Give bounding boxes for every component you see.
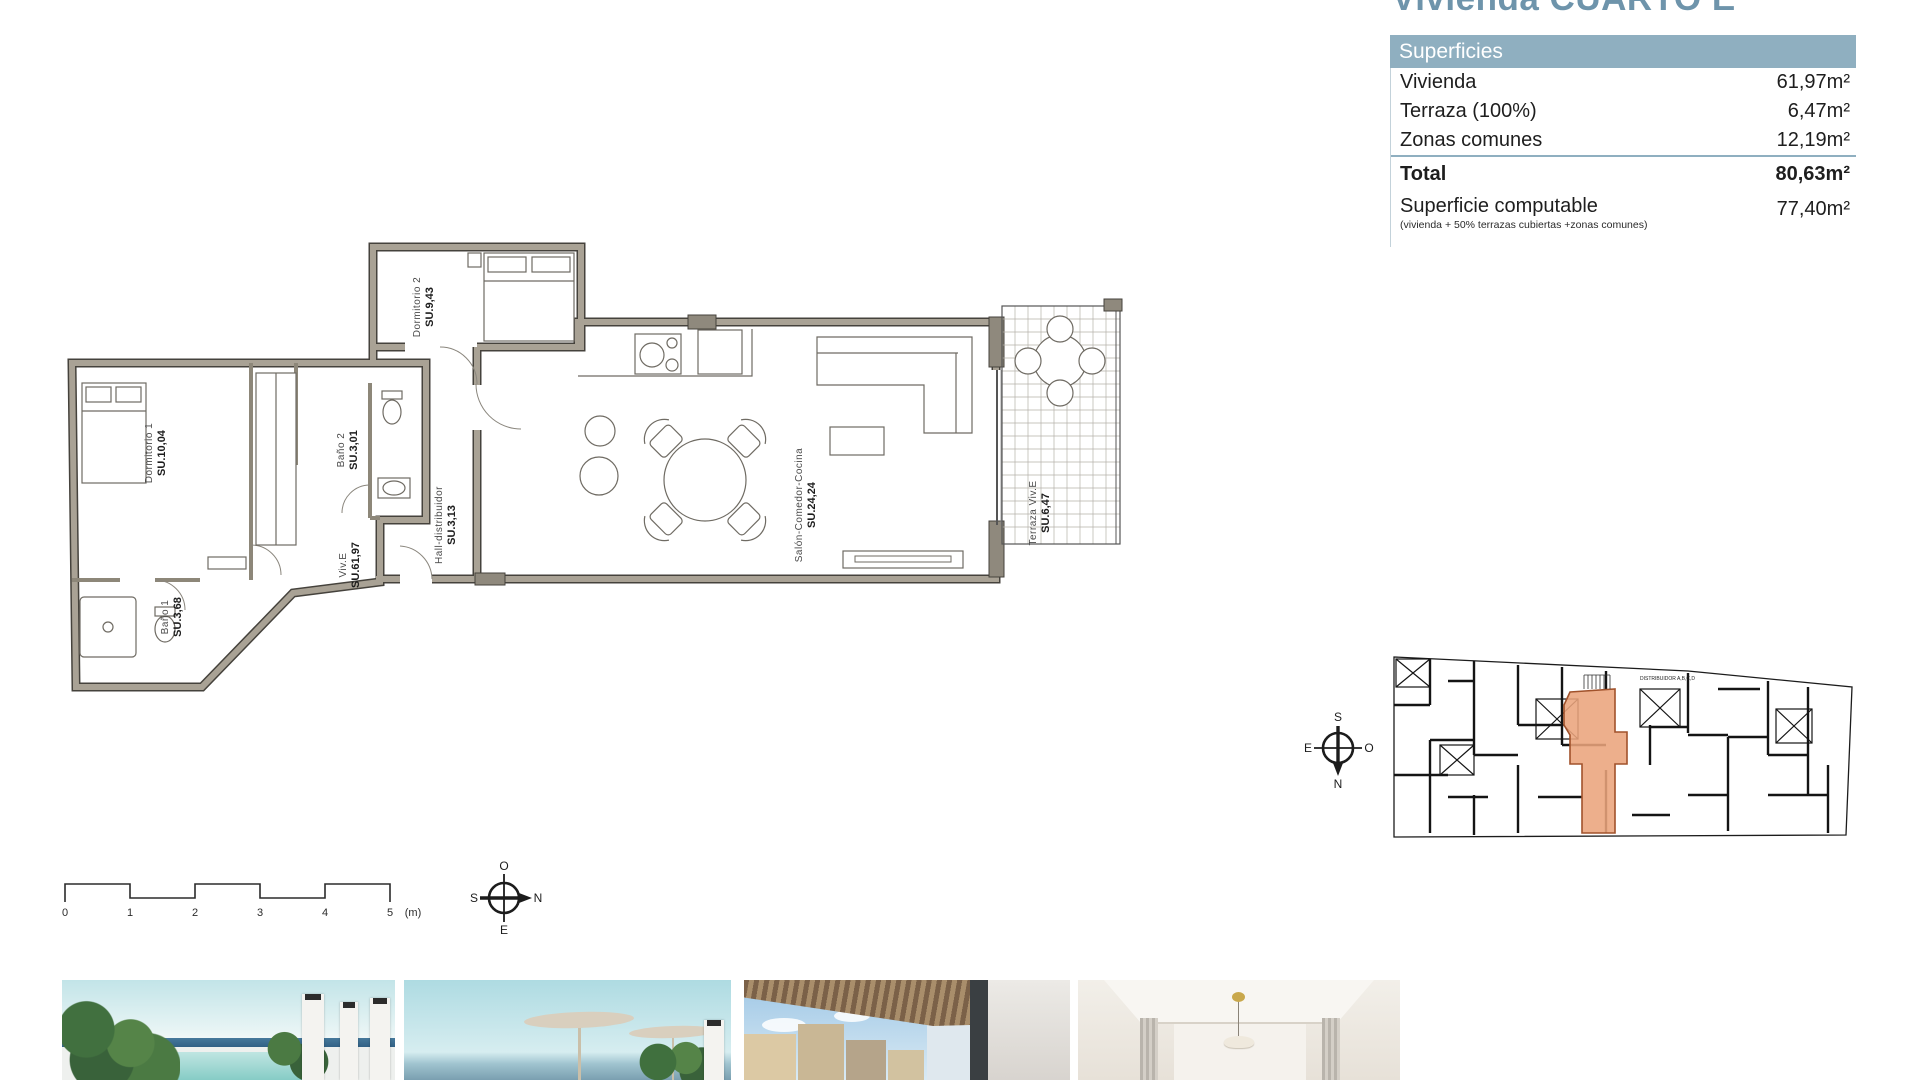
- svg-text:Salón-Comedor-Cocina: Salón-Comedor-Cocina: [794, 448, 805, 563]
- svg-text:SU.9,43: SU.9,43: [424, 287, 436, 327]
- svg-text:N: N: [1334, 777, 1343, 790]
- sink: [585, 416, 615, 446]
- plants: [62, 988, 180, 1080]
- label-hall: Hall-distribuidor SU.3,13: [434, 486, 458, 564]
- row-label: Zonas comunes: [1400, 129, 1542, 152]
- pillar: [704, 1020, 724, 1080]
- key-plan-annotation: DISTRIBUIDOR A,B,C,D: [1640, 676, 1695, 682]
- svg-text:SU.3,01: SU.3,01: [348, 430, 360, 470]
- row-value: 12,19m²: [1777, 129, 1850, 152]
- scale-tick: 5: [387, 907, 393, 919]
- svg-text:O: O: [1364, 741, 1373, 755]
- photo-living-room-interior: [1078, 980, 1400, 1080]
- svg-text:E: E: [500, 923, 508, 934]
- label-dormitorio-1: Dormitorio 1 SU.10,04: [144, 423, 168, 483]
- scale-unit: (m): [405, 907, 422, 919]
- svg-text:SU.3,68: SU.3,68: [172, 597, 184, 637]
- row-value: 61,97m²: [1777, 71, 1850, 94]
- row-label: Terraza (100%): [1400, 100, 1537, 123]
- dining-table: [638, 413, 772, 547]
- row-label: Vivienda: [1400, 71, 1476, 94]
- svg-text:Viv.E: Viv.E: [338, 553, 349, 578]
- computable-label: Superficie computable: [1400, 195, 1598, 217]
- label-bano-1: Baño 1 SU.3,68: [160, 597, 184, 637]
- scale-tick: 1: [127, 907, 133, 919]
- compass-arrow: [519, 893, 532, 903]
- table-row: Vivienda 61,97m²: [1391, 68, 1856, 97]
- svg-text:SU.61,97: SU.61,97: [350, 542, 362, 588]
- bed-dormitorio-1: [82, 373, 296, 569]
- total-label: Total: [1400, 163, 1446, 186]
- compass-keyplan: S E O N: [1302, 706, 1374, 790]
- terrace-table: [1015, 316, 1105, 406]
- photo-balcony-city-view: [744, 980, 1070, 1080]
- scale-bar: 0 1 2 3 4 5 (m): [58, 874, 438, 920]
- umbrella-pole: [578, 1024, 581, 1080]
- label-terraza: Terraza Viv.E SU.6,47: [1028, 480, 1052, 545]
- row-value: 6,47m²: [1788, 100, 1850, 123]
- total-value: 80,63m²: [1776, 163, 1851, 186]
- svg-text:SU.6,47: SU.6,47: [1040, 493, 1052, 533]
- svg-text:Hall-distribuidor: Hall-distribuidor: [434, 486, 445, 564]
- window-wall: [997, 370, 1001, 525]
- compass-main: O S N E: [464, 858, 544, 934]
- photo-pool-terrace: [62, 980, 395, 1080]
- page-title: Vivienda CUARTO E: [1392, 0, 1736, 19]
- computable-value: 77,40m²: [1777, 195, 1850, 221]
- pillar: [370, 998, 390, 1080]
- bano-2-fixtures: [378, 391, 410, 498]
- svg-text:N: N: [534, 891, 543, 905]
- surfaces-table-header: Superficies: [1390, 35, 1856, 68]
- terrace: [1002, 299, 1122, 544]
- pillar: [475, 573, 505, 585]
- pendant-lamp: [1224, 1036, 1254, 1048]
- scale-tick: 0: [62, 907, 68, 919]
- building: [846, 1040, 886, 1080]
- table-row-computable: Superficie computable (vivienda + 50% te…: [1391, 191, 1856, 247]
- table-row-total: Total 80,63m²: [1391, 155, 1856, 191]
- bed-dormitorio-2: [468, 253, 574, 341]
- building: [798, 1024, 844, 1080]
- window-frame: [970, 980, 988, 1080]
- scale-tick: 3: [257, 907, 263, 919]
- label-viv-e: Viv.E SU.61,97: [338, 542, 362, 588]
- svg-text:SU.10,04: SU.10,04: [156, 429, 168, 476]
- bright-window: [1174, 1024, 1306, 1080]
- coffee-table: [830, 427, 884, 455]
- curtain: [1140, 1018, 1158, 1080]
- label-salon: Salón-Comedor-Cocina SU.24,24: [794, 448, 818, 563]
- pendant-cord: [1238, 998, 1239, 1038]
- pillar: [302, 994, 324, 1080]
- dresser: [208, 557, 246, 569]
- building: [744, 1034, 796, 1080]
- photo-beach-umbrellas: [404, 980, 731, 1080]
- svg-text:Baño 2: Baño 2: [336, 433, 347, 468]
- label-dormitorio-2: Dormitorio 2 SU.9,43: [412, 277, 436, 337]
- svg-text:S: S: [1334, 710, 1342, 724]
- computable-note: (vivienda + 50% terrazas cubiertas +zona…: [1400, 219, 1647, 231]
- pillar: [340, 1002, 358, 1080]
- svg-text:Dormitorio 1: Dormitorio 1: [144, 423, 155, 483]
- ceiling-medallion: [1232, 992, 1245, 1002]
- label-bano-2: Baño 2 SU.3,01: [336, 430, 360, 470]
- svg-text:Terraza Viv.E: Terraza Viv.E: [1028, 480, 1039, 545]
- table-row: Terraza (100%) 6,47m²: [1391, 97, 1856, 126]
- balcony-interior: [988, 980, 1070, 1080]
- svg-text:SU.3,13: SU.3,13: [446, 505, 458, 545]
- tv-unit: [843, 551, 963, 568]
- key-plan: DISTRIBUIDOR A,B,C,D: [1388, 645, 1866, 860]
- svg-text:SU.24,24: SU.24,24: [806, 481, 818, 528]
- building: [888, 1050, 924, 1080]
- scale-tick: 2: [192, 907, 198, 919]
- svg-text:S: S: [470, 891, 478, 905]
- svg-text:Dormitorio 2: Dormitorio 2: [412, 277, 423, 337]
- curtain: [1322, 1018, 1340, 1080]
- floor-plan: Dormitorio 1 SU.10,04 Dormitorio 2 SU.9,…: [60, 235, 1130, 695]
- umbrella: [524, 1010, 634, 1030]
- surfaces-table: Superficies Vivienda 61,97m² Terraza (10…: [1390, 35, 1856, 247]
- svg-text:Baño 1: Baño 1: [160, 600, 171, 635]
- svg-text:O: O: [499, 859, 508, 873]
- plants: [634, 1040, 714, 1080]
- sofa: [817, 337, 972, 433]
- table-row: Zonas comunes 12,19m²: [1391, 126, 1856, 155]
- compass-arrow: [1333, 763, 1343, 776]
- scale-tick: 4: [322, 907, 328, 919]
- svg-text:E: E: [1304, 741, 1312, 755]
- pillar: [688, 315, 716, 329]
- washer: [580, 457, 618, 495]
